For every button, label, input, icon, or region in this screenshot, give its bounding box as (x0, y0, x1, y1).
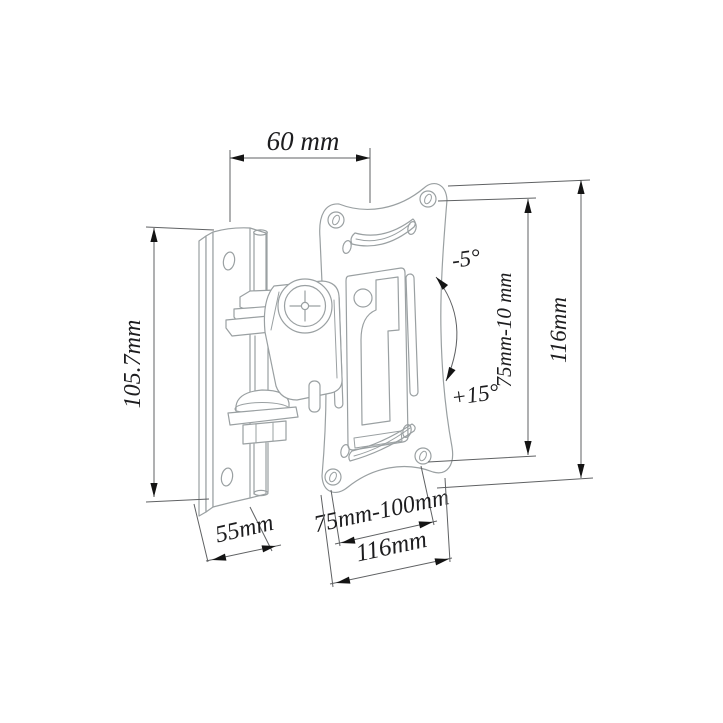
tilt-down-label: +15° (450, 379, 501, 410)
dim-wall-plate-height-label: 105.7mm (120, 320, 146, 409)
wall-plate-face (213, 228, 250, 507)
dim-arrow (435, 555, 450, 565)
tilt-up-label: -5° (450, 244, 482, 273)
dim-arrow (524, 199, 531, 213)
tilt-arrow-down (443, 367, 456, 383)
dim-wall-plate-depth: 55mm (194, 504, 281, 564)
dim-vesa-pattern-height-label: 75mm-10 mm (492, 273, 516, 388)
wall-plate-edge-strip (199, 236, 206, 516)
dim-arrow (356, 154, 370, 161)
dim-top-width-label: 60 mm (267, 126, 340, 156)
drawing-canvas: 60 mm 105.7mm 75mm-10 mm 116mm (0, 0, 723, 723)
wall-plate-channel (250, 228, 266, 498)
dim-arrow (335, 577, 350, 587)
dim-wall-plate-depth-label: 55mm (213, 510, 276, 549)
hex-nut (243, 421, 286, 444)
wall-plate (199, 228, 266, 516)
dim-arrow (150, 228, 157, 242)
dim-plate-width-label: 116mm (354, 526, 430, 567)
dim-arrow (524, 441, 531, 455)
dim-arrow (150, 483, 157, 497)
bracket-dimension-diagram: 60 mm 105.7mm 75mm-10 mm 116mm (0, 0, 723, 723)
dim-arrow (577, 464, 584, 478)
phillips-screw (278, 279, 332, 333)
dim-arrow (577, 180, 584, 194)
arm-end-tab (309, 381, 320, 412)
dim-arrow (230, 154, 244, 161)
dim-plate-height-label: 116mm (546, 297, 571, 363)
dim-arrow (262, 542, 277, 552)
wall-plate-side (206, 232, 213, 512)
dim-arrow (211, 554, 226, 564)
